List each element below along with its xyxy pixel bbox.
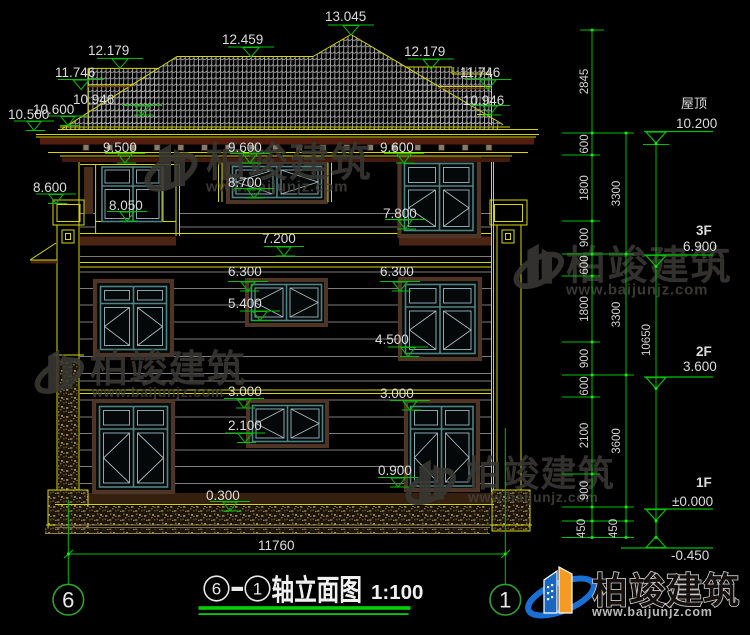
svg-text:www.baijunjz.com: www.baijunjz.com <box>205 179 348 196</box>
svg-text:www.baijunjz.com: www.baijunjz.com <box>91 384 224 400</box>
svg-text:6: 6 <box>212 580 221 599</box>
svg-text:轴立面图: 轴立面图 <box>272 573 362 606</box>
svg-text:9.600: 9.600 <box>228 140 262 155</box>
svg-text:11.746: 11.746 <box>55 65 95 80</box>
svg-text:7.800: 7.800 <box>383 206 417 221</box>
svg-text:600: 600 <box>579 134 591 153</box>
svg-text:600: 600 <box>579 376 591 395</box>
svg-text:600: 600 <box>579 255 591 274</box>
svg-text:3.600: 3.600 <box>683 359 717 374</box>
svg-text:www.baijunjz.com: www.baijunjz.com <box>565 282 708 299</box>
svg-text:10.946: 10.946 <box>73 92 114 107</box>
svg-text:5.400: 5.400 <box>228 296 262 311</box>
svg-text:8.700: 8.700 <box>228 175 262 190</box>
svg-text:12.179: 12.179 <box>88 43 129 58</box>
svg-text:7.200: 7.200 <box>262 231 296 246</box>
svg-text:3300: 3300 <box>611 302 623 328</box>
svg-text:2845: 2845 <box>579 69 591 95</box>
svg-text:900: 900 <box>579 481 591 500</box>
svg-text:6.300: 6.300 <box>228 264 262 279</box>
svg-text:0.300: 0.300 <box>206 488 240 503</box>
svg-text:1F: 1F <box>696 475 712 490</box>
svg-text:6.900: 6.900 <box>683 239 717 254</box>
svg-text:-0.450: -0.450 <box>671 548 709 563</box>
svg-text:0.900: 0.900 <box>378 463 412 478</box>
svg-text:1800: 1800 <box>579 175 591 201</box>
svg-text:3.000: 3.000 <box>228 384 262 399</box>
svg-text:450: 450 <box>608 519 620 538</box>
svg-text:10.200: 10.200 <box>676 116 717 131</box>
svg-text:9.600: 9.600 <box>380 140 414 155</box>
svg-text:10.500: 10.500 <box>8 107 49 122</box>
svg-text:±0.000: ±0.000 <box>672 494 713 509</box>
svg-text:1800: 1800 <box>579 296 591 322</box>
svg-text:4.500: 4.500 <box>375 332 409 347</box>
svg-text:900: 900 <box>579 228 591 247</box>
svg-text:6.300: 6.300 <box>380 264 414 279</box>
svg-text:www.baijunjz.com: www.baijunjz.com <box>591 605 713 619</box>
svg-text:3F: 3F <box>696 223 712 238</box>
svg-text:8.600: 8.600 <box>33 180 67 195</box>
svg-text:1: 1 <box>499 588 511 613</box>
svg-text:11.746: 11.746 <box>460 65 500 80</box>
svg-text:2F: 2F <box>696 344 712 359</box>
svg-text:8.050: 8.050 <box>109 198 143 213</box>
svg-text:450: 450 <box>576 519 588 538</box>
svg-text:10650: 10650 <box>641 324 653 356</box>
svg-text:13.045: 13.045 <box>325 9 366 24</box>
svg-text:1:100: 1:100 <box>371 581 423 604</box>
svg-text:3.000: 3.000 <box>380 386 414 401</box>
svg-text:6: 6 <box>62 588 74 613</box>
svg-text:2100: 2100 <box>579 423 591 449</box>
svg-text:2.100: 2.100 <box>228 418 262 433</box>
svg-text:11760: 11760 <box>258 538 295 553</box>
svg-text:900: 900 <box>579 349 591 368</box>
svg-text:3600: 3600 <box>611 428 623 454</box>
svg-text:9.500: 9.500 <box>103 140 137 155</box>
svg-text:1: 1 <box>253 580 262 599</box>
svg-text:屋顶: 屋顶 <box>681 96 707 111</box>
svg-text:12.459: 12.459 <box>222 32 263 47</box>
svg-text:12.179: 12.179 <box>404 44 445 59</box>
svg-text:3300: 3300 <box>611 181 623 207</box>
